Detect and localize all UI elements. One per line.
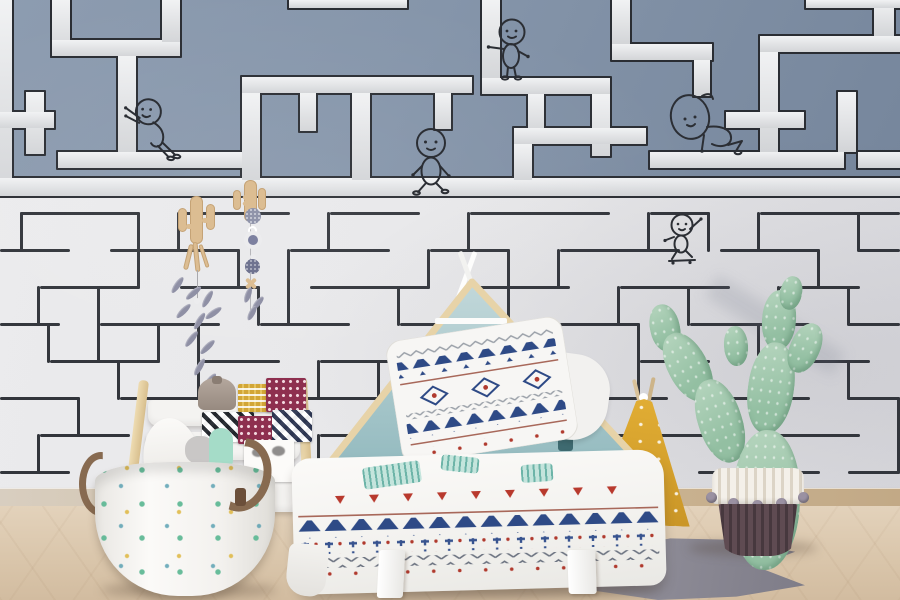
garland-string	[197, 270, 198, 300]
feather	[204, 305, 223, 321]
feather	[246, 305, 259, 322]
feather	[192, 311, 207, 330]
doodle-resting-figure-icon	[662, 83, 750, 157]
crochet-ball-bead	[245, 208, 261, 224]
blanket-border-band	[296, 505, 662, 579]
feather	[192, 357, 207, 376]
cactus-arm	[258, 188, 266, 210]
mint-print	[520, 463, 553, 483]
cactus-bridge	[186, 224, 193, 229]
doodle-walking-figure-icon	[405, 126, 459, 196]
cactus-arm	[206, 204, 215, 230]
pot-base	[716, 504, 800, 556]
house-frame-bed	[285, 248, 670, 600]
pot-pompom	[798, 492, 809, 503]
crochet-ball-bead	[245, 259, 260, 274]
large-ring-bead	[244, 231, 262, 249]
pouch-cinch	[212, 376, 222, 384]
handle-buckle	[235, 488, 246, 506]
bed-leg-right	[567, 550, 597, 594]
feather	[199, 338, 217, 356]
cactus-bridge	[202, 218, 209, 223]
bed-leg-left	[377, 550, 406, 598]
pot-rim	[712, 468, 804, 504]
cactus-arm	[233, 190, 241, 210]
doodle-pushing-figure-icon	[120, 95, 190, 161]
storage-basket	[85, 448, 290, 600]
blanket	[293, 448, 665, 600]
potted-cactus	[640, 282, 830, 577]
stick	[198, 244, 209, 268]
hanging-decor	[160, 178, 290, 403]
feather	[170, 275, 186, 294]
feather	[175, 302, 193, 320]
pot-pompom	[706, 492, 717, 503]
feather	[242, 286, 253, 303]
bedroom-scene	[0, 0, 900, 600]
doodle-standing-figure-icon	[486, 17, 532, 81]
cactus-arm	[178, 208, 187, 232]
cactus-pad	[723, 325, 750, 367]
bead	[194, 298, 200, 304]
feather	[183, 330, 199, 349]
blanket-drape-corner	[284, 542, 329, 598]
